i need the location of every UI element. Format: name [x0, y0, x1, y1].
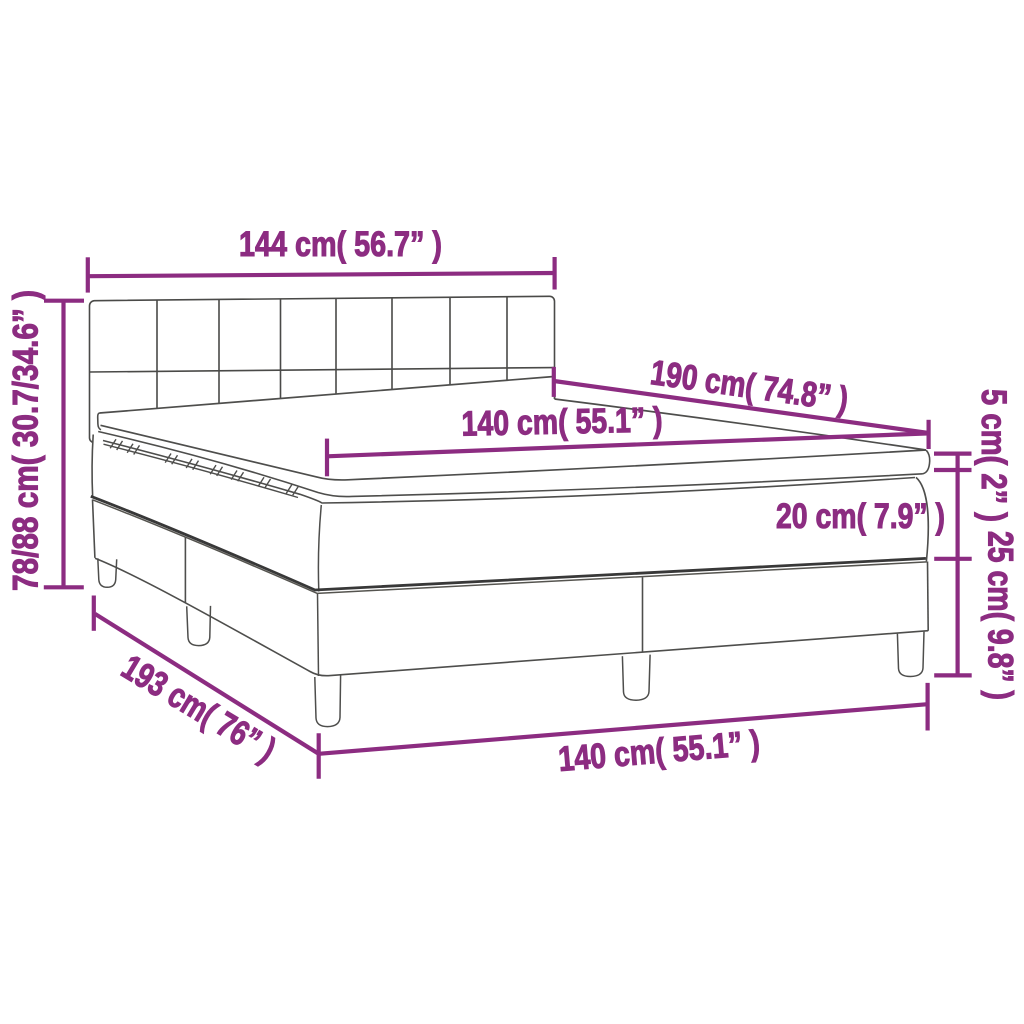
svg-text:25 cm( 9.8” ): 25 cm( 9.8” ): [980, 531, 1019, 700]
svg-text:20 cm( 7.9” ): 20 cm( 7.9” ): [776, 497, 945, 536]
svg-text:78/88 cm( 30.7/34.6” ): 78/88 cm( 30.7/34.6” ): [7, 290, 46, 591]
svg-text:144 cm( 56.7” ): 144 cm( 56.7” ): [239, 225, 442, 264]
svg-text:140 cm( 55.1” ): 140 cm( 55.1” ): [461, 400, 663, 443]
svg-text:5 cm( 2” ): 5 cm( 2” ): [974, 389, 1013, 522]
